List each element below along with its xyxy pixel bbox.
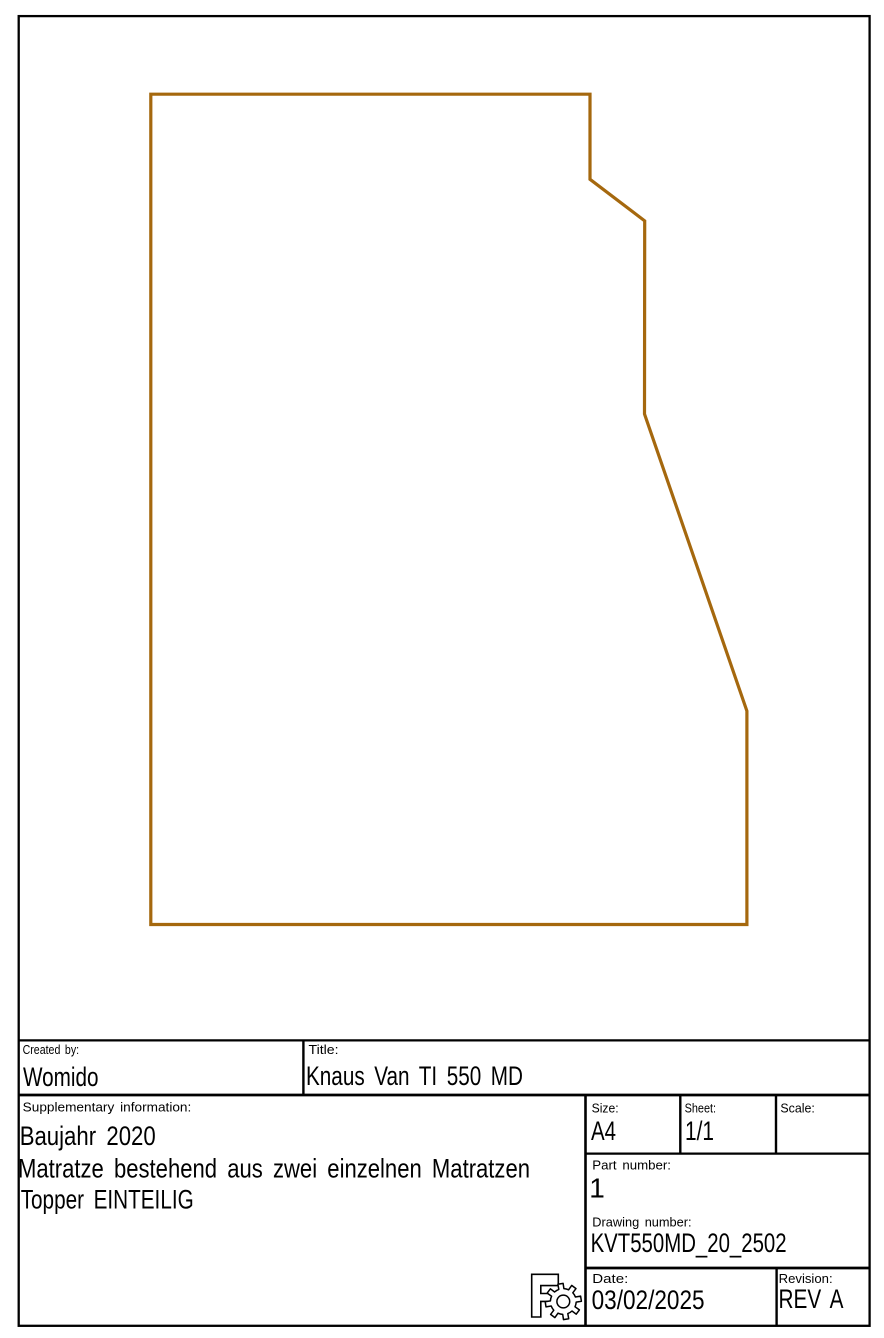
svg-text:Size:: Size: (592, 1101, 619, 1116)
svg-text:Womido: Womido (23, 1062, 99, 1092)
svg-text:KVT550MD_20_2502: KVT550MD_20_2502 (591, 1228, 787, 1258)
svg-text:03/02/2025: 03/02/2025 (592, 1285, 705, 1315)
svg-text:Scale:: Scale: (780, 1101, 815, 1116)
svg-text:REV A: REV A (779, 1284, 844, 1314)
svg-text:A4: A4 (591, 1116, 616, 1146)
svg-text:Sheet:: Sheet: (685, 1101, 717, 1116)
svg-text:Topper EINTEILIG: Topper EINTEILIG (21, 1184, 194, 1214)
svg-text:1: 1 (589, 1173, 605, 1204)
svg-text:1/1: 1/1 (685, 1116, 714, 1146)
svg-text:Created by:: Created by: (23, 1042, 80, 1057)
svg-text:Part number:: Part number: (592, 1158, 671, 1173)
svg-text:Date:: Date: (592, 1271, 628, 1286)
svg-text:Supplementary information:: Supplementary information: (23, 1100, 192, 1115)
svg-text:Baujahr 2020: Baujahr 2020 (20, 1121, 156, 1151)
svg-text:Matratze bestehend aus zwei ei: Matratze bestehend aus zwei einzelnen Ma… (18, 1154, 530, 1184)
svg-text:Title:: Title: (309, 1042, 339, 1057)
svg-text:Knaus Van TI 550 MD: Knaus Van TI 550 MD (306, 1061, 523, 1091)
